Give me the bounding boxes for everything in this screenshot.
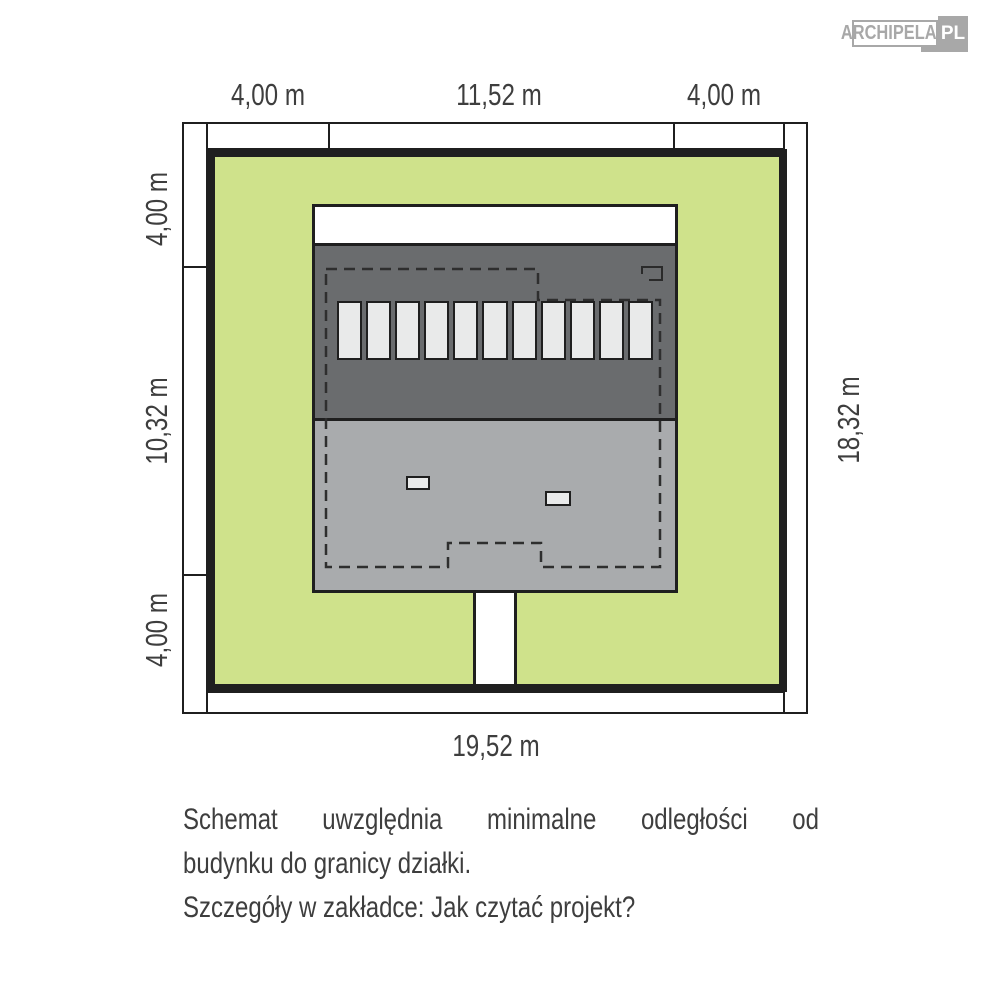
caption-text: Schemat uwzględnia minimalne odległości …: [183, 798, 819, 930]
dimension-tick: [182, 574, 208, 576]
dim-label-bottom-total: 19,52 m: [452, 728, 539, 764]
house-roof-light-section: [315, 418, 675, 590]
roof-panel: [541, 301, 566, 360]
site-plan-page: ARCHIPELAG PL 4,00 m 11,52 m 4,00 m: [0, 0, 995, 1001]
roof-panel: [453, 301, 478, 360]
dimension-band-left: [182, 122, 208, 714]
logo-pl-text: PL: [941, 23, 965, 45]
dimension-band-bottom: [182, 691, 808, 714]
dim-label-left-bottom: 4,00 m: [139, 593, 175, 667]
dimension-band-top: [182, 122, 808, 150]
dim-label-left-middle: 10,32 m: [139, 377, 175, 464]
house-footprint: [312, 204, 678, 593]
dim-label-right-total: 18,32 m: [831, 376, 867, 463]
logo-frame: ARCHIPELAG: [852, 20, 938, 47]
roof-panel: [337, 301, 362, 360]
dimension-tick: [182, 266, 208, 268]
roof-panels: [337, 301, 653, 360]
roof-panel: [599, 301, 624, 360]
roof-panel: [628, 301, 653, 360]
entrance-walkway: [473, 593, 517, 684]
roof-window: [545, 491, 571, 506]
roof-panel: [366, 301, 391, 360]
roof-panel: [482, 301, 507, 360]
dim-label-top-left: 4,00 m: [231, 77, 305, 113]
logo-brand-text: ARCHIPELAG: [841, 22, 949, 45]
chimney-gap: [641, 274, 649, 281]
logo-pl-badge: PL: [938, 16, 968, 52]
dim-label-top-center: 11,52 m: [456, 77, 542, 113]
roof-panel: [395, 301, 420, 360]
roof-panel: [570, 301, 595, 360]
dim-label-left-top: 4,00 m: [139, 172, 175, 246]
dimension-tick: [673, 122, 675, 150]
logo-step-decoration: [921, 45, 938, 52]
dim-label-top-right: 4,00 m: [687, 77, 761, 113]
roof-panel: [424, 301, 449, 360]
roof-window: [406, 476, 430, 490]
dimension-tick: [328, 122, 330, 150]
house-terrace-strip: [315, 207, 675, 243]
caption-line-3: Szczegóły w zakładce: Jak czytać projekt…: [183, 886, 819, 930]
roof-panel: [512, 301, 537, 360]
caption-line-1: Schemat uwzględnia minimalne odległości …: [183, 798, 819, 842]
chimney-icon: [641, 266, 663, 281]
caption-line-2: budynku do granicy działki.: [183, 842, 819, 886]
